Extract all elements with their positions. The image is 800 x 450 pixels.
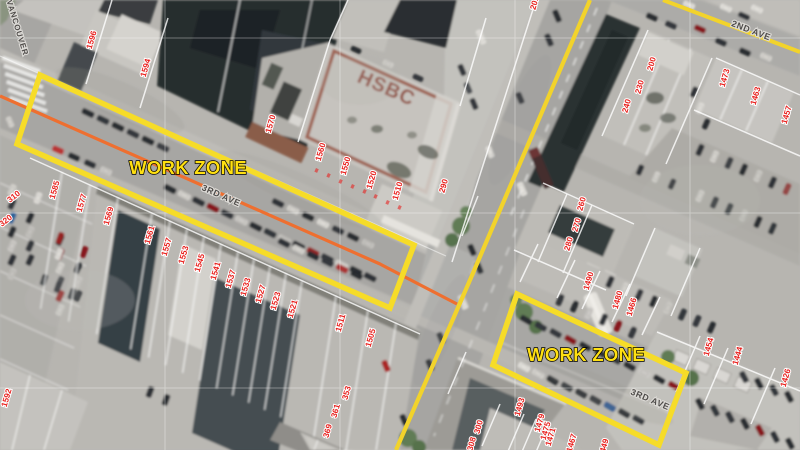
svg-text:WORK ZONE: WORK ZONE xyxy=(527,344,645,365)
svg-text:WORK ZONE: WORK ZONE xyxy=(129,157,247,178)
